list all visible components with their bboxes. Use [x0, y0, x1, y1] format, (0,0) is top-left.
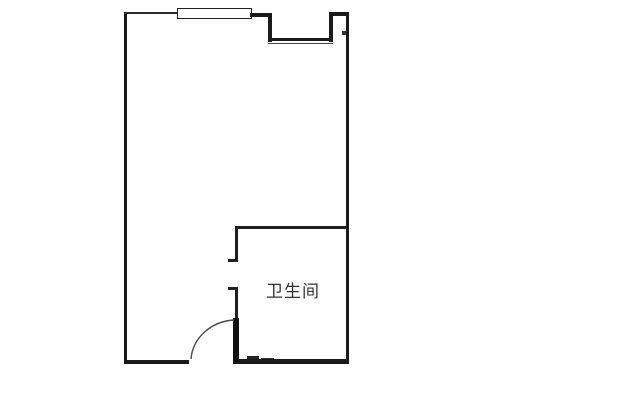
- wall-right: [346, 12, 349, 364]
- entry-door-swing-arc: [183, 314, 241, 366]
- wall-bottom-right-segment: [233, 359, 348, 364]
- threshold-mark: [247, 356, 259, 359]
- bathroom-doorway-jamb-lower: [228, 287, 239, 290]
- wall-top-left-segment: [124, 12, 180, 14]
- notch-bottom-wall: [268, 38, 333, 41]
- threshold-mark: [261, 358, 274, 360]
- floor-plan: 卫生间: [0, 0, 640, 415]
- wall-left: [124, 12, 127, 364]
- window-symbol: [177, 8, 252, 19]
- notch-bottom-wall-inner-line: [268, 43, 333, 44]
- bathroom-doorway-jamb-upper: [228, 259, 239, 262]
- bathroom-partition-top-wall: [236, 226, 346, 229]
- wall-joint-mark: [342, 31, 347, 35]
- bathroom-partition-left-wall-upper: [235, 226, 238, 261]
- bathroom-label: 卫生间: [266, 282, 320, 303]
- wall-bottom-left-segment: [124, 360, 189, 364]
- notch-right-wall: [329, 12, 333, 42]
